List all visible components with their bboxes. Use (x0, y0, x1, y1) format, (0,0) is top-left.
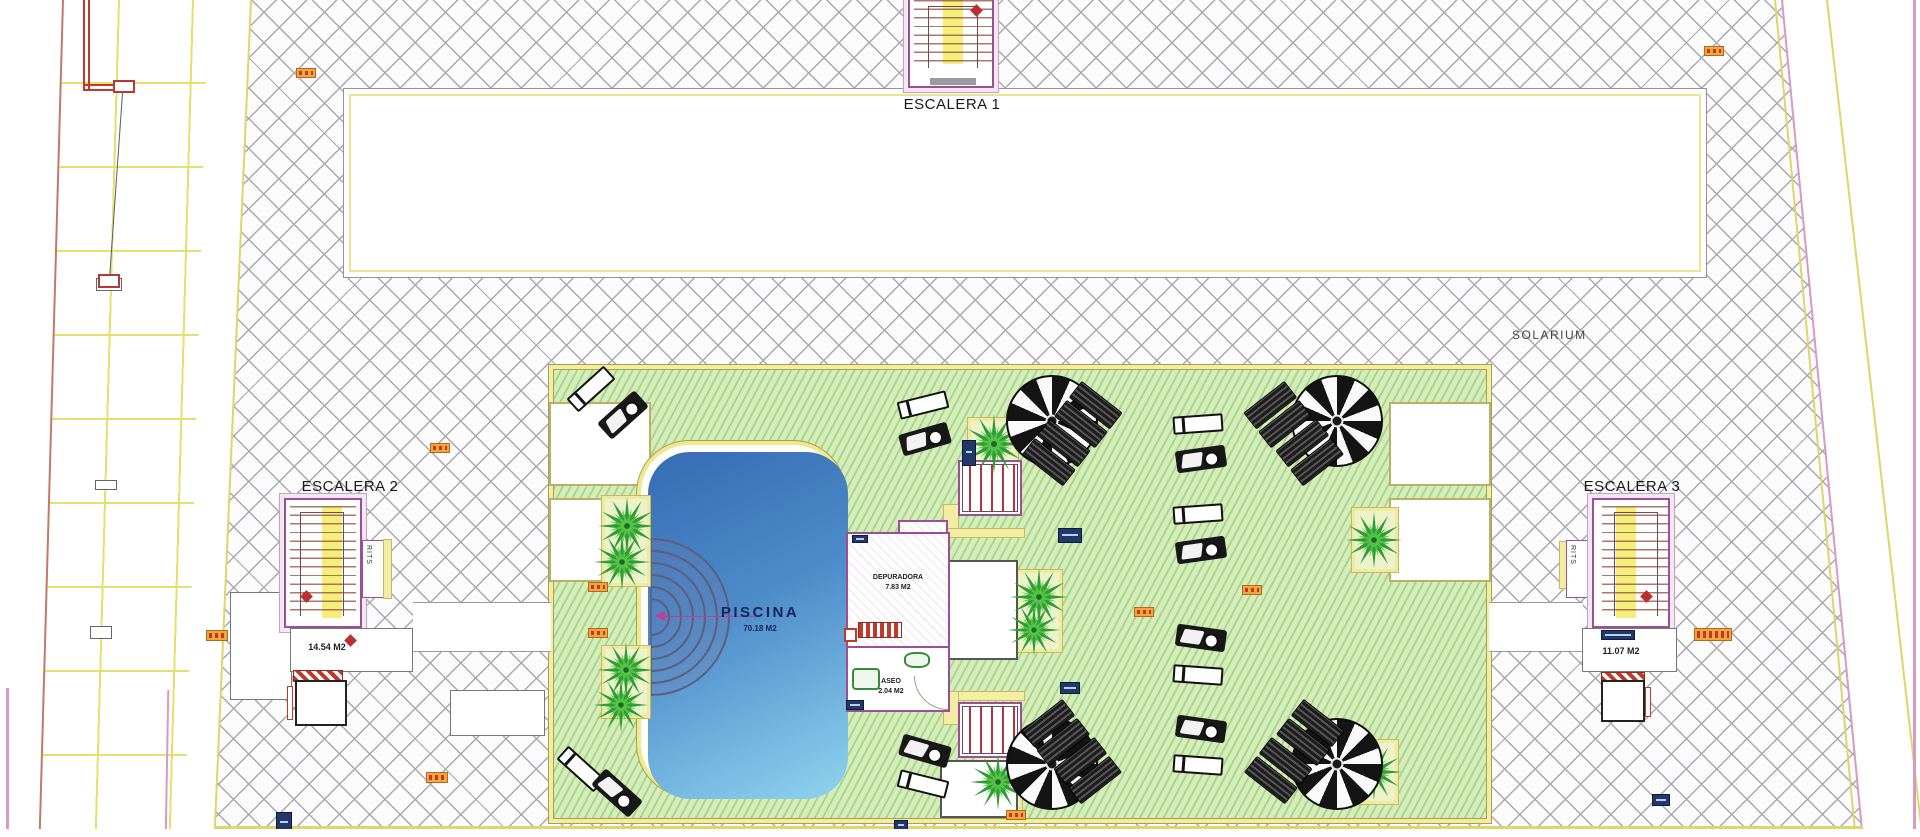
palm-tree-icon (1006, 602, 1062, 658)
escalera-2-area-label: 14.54 M2 (292, 642, 362, 652)
sun-lounger-icon (1172, 503, 1223, 524)
pool-entry-arrow-head (650, 611, 665, 621)
street-edge-line (1913, 0, 1916, 837)
utility-marker-icon (426, 772, 448, 783)
palm-tree-icon (592, 676, 650, 734)
aseo-label: ASEO (856, 678, 926, 685)
rooftop-hall (343, 88, 1707, 278)
palm-tree-icon (1344, 510, 1404, 570)
depuradora-area-label: 7.83 M2 (846, 584, 950, 591)
elevator-shaft (1601, 680, 1645, 722)
sheet-margin (0, 829, 1920, 837)
stair-landing-mat (930, 78, 976, 85)
street-edge-line (6, 688, 9, 837)
escalera-3-label: ESCALERA 3 (1572, 478, 1692, 495)
light-fixture-icon (1058, 528, 1082, 543)
escalera-3-area-label: 11.07 M2 (1586, 646, 1656, 656)
sun-lounger-icon (1172, 413, 1223, 434)
stairwell-escalera-3 (1592, 498, 1670, 628)
escalera-1-label: ESCALERA 1 (890, 96, 1014, 113)
utility-marker-icon (588, 582, 608, 592)
utility-marker-icon (1704, 46, 1724, 56)
depuradora-label: DEPURADORA (846, 574, 950, 581)
utility-marker-icon (206, 630, 228, 641)
name-plate-badge (1601, 630, 1635, 640)
elevator-rail (1645, 687, 1651, 717)
utility-marker-icon (296, 68, 316, 78)
light-fixture-icon (1060, 682, 1080, 694)
sun-lounger-icon (1172, 664, 1223, 685)
solarium-label: SOLARIUM (1512, 328, 1587, 342)
light-fixture-icon (852, 535, 868, 543)
corridor-west (413, 602, 551, 652)
light-fixture-icon (846, 700, 864, 710)
escalera-2-label: ESCALERA 2 (290, 478, 410, 495)
pump-icon (858, 622, 902, 638)
rits-label: RITS (1569, 545, 1576, 565)
toilet-icon (904, 652, 930, 668)
west-wing-room (230, 592, 292, 700)
terrace-post (90, 626, 112, 639)
deck-skylight (1389, 402, 1491, 486)
pool-area-label: 70.18 M2 (690, 624, 830, 633)
rits-closet: RITS (1566, 540, 1588, 598)
survey-post (98, 274, 120, 288)
stair-well-divider (1614, 512, 1658, 616)
utility-marker-icon (430, 443, 450, 453)
path-edge (944, 529, 1024, 537)
utility-marker-icon (1694, 628, 1732, 641)
utility-marker-icon (588, 628, 608, 638)
elevator-rail (287, 686, 293, 720)
floor-plan-canvas: ESCALERA 1 SOLARIUM PISCINA 70.18 M2 (0, 0, 1920, 837)
rits-closet: RITS (362, 540, 384, 598)
light-fixture-icon (1652, 794, 1670, 806)
deck-skylight (1389, 498, 1491, 582)
path-edge (384, 540, 391, 598)
sun-lounger-icon (1172, 754, 1223, 775)
pump-icon (844, 628, 857, 642)
aseo-area-label: 2.04 M2 (856, 688, 926, 695)
elevator-shaft (295, 680, 347, 726)
light-fixture-icon (962, 440, 976, 466)
utility-marker-icon (1134, 607, 1154, 617)
utility-marker-icon (1242, 585, 1262, 595)
neighbour-terrace-band (39, 0, 208, 837)
west-room (450, 690, 545, 736)
terrace-post (95, 480, 117, 490)
stairwell-escalera-1 (908, 0, 994, 88)
stairwell-escalera-2 (284, 498, 362, 628)
stair-well-divider (928, 6, 978, 68)
corridor-east (1489, 602, 1583, 652)
neighbour-wall-line (83, 0, 90, 90)
depuradora-room (846, 532, 950, 663)
utility-marker-icon (1006, 810, 1026, 820)
pool-label: PISCINA (690, 604, 830, 621)
survey-post (113, 80, 135, 93)
rits-label: RITS (365, 545, 372, 565)
